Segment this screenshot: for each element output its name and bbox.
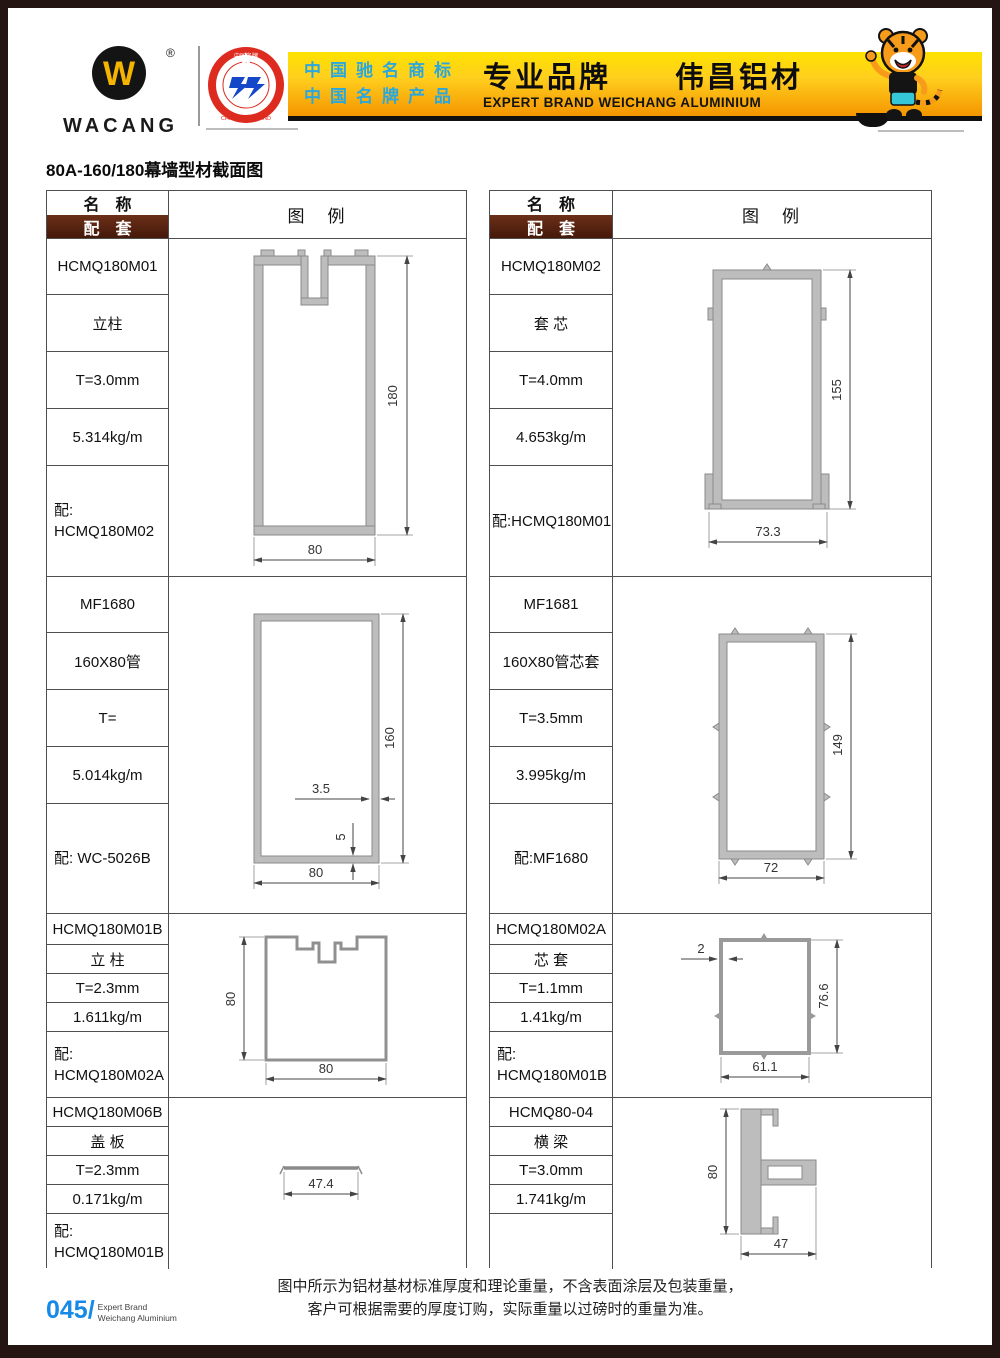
spec-weight: 5.314kg/m [47,409,168,466]
dim-height-label: 155 [829,379,844,401]
match-header: 配 套 [490,215,612,238]
badge-bottom-text: CHINA TOP BRAND [221,116,271,122]
table-header: 名 称 配 套 图 例 [47,191,466,239]
spec-weight: 3.995kg/m [490,747,612,804]
spec-name: 立柱 [47,295,168,352]
profile-shape [713,628,830,865]
legend-cell: 76.6 61.1 2 [613,914,931,1097]
dim-height-label: 149 [830,734,845,756]
spec-thickness: T=3.5mm [490,690,612,747]
spec-weight: 1.611kg/m [47,1003,168,1032]
spec-match [490,1214,612,1269]
spec-name: 160X80管芯套 [490,633,612,690]
profile-shape [254,614,379,863]
spec-name: 套 芯 [490,295,612,352]
spec-match-line2: HCMQ180M02 [54,521,154,542]
banner-credentials: 中国驰名商标 中国名牌产品 [304,58,460,111]
page-footer-brand: Expert Brand Weichang Aluminium [98,1302,177,1323]
name-header: 名 称 [47,191,168,215]
spec-table-left: 名 称 配 套 图 例 HCMQ180M01 立柱 T=3.0mm 5.314k… [46,190,467,1268]
spec-match-line2: HCMQ180M02A [54,1065,164,1086]
spec-thickness: T=3.0mm [490,1156,612,1185]
spec-thickness: T=4.0mm [490,352,612,409]
wacang-logo-icon: W [85,40,157,112]
dim-width-label: 47.4 [308,1176,333,1191]
dim-height-label: 160 [382,727,397,749]
footer-note-line1: 图中所示为铝材基材标准厚度和理论重量，不含表面涂层及包装重量， [150,1276,870,1299]
dim-width-label: 80 [319,1061,333,1076]
spec-match-line1: 配: [497,1044,516,1065]
tiger-mascot-icon [856,22,952,124]
profile-shape [714,933,816,1060]
footer-note-line2: 客户可根据需要的厚度订购，实际重量以过磅时的重量为准。 [150,1299,870,1322]
profile-shape [741,1109,816,1234]
china-top-brand-badge: 中国名牌 CHINA TOP BRAND [206,44,286,126]
spec-match-line1: 配: [54,500,73,521]
banner-credential-line1: 中国驰名商标 [304,58,460,84]
tiger-underline [878,130,964,132]
section-hcmq80-04: HCMQ80-04 横 梁 T=3.0mm 1.741kg/m [490,1098,931,1269]
profile-drawing-hcmq180m02a: 76.6 61.1 2 [613,915,931,1097]
dim-height-label: 76.6 [816,983,831,1008]
spec-match-line1: 配:HCMQ180M01 [492,511,611,532]
banner-brand: 专业品牌 伟昌铝材 EXPERT BRAND WEICHANG ALUMINIU… [483,54,803,110]
legend-cell: 47.4 [169,1098,466,1269]
profile-drawing-hcmq180m02: 155 73.3 [613,240,931,576]
legend-header: 图 例 [169,191,466,238]
spec-weight: 1.741kg/m [490,1185,612,1214]
dim-height-label: 180 [385,385,400,407]
spec-match-line1: 配:MF1680 [514,848,588,869]
dim-height-label: 80 [705,1165,720,1179]
spec-code: HCMQ180M01 [47,239,168,295]
spec-match-line1: 配: [54,1221,73,1242]
profile-drawing-hcmq180m01: 180 80 [169,240,466,576]
dim-bottomwall-label: 5 [333,833,348,840]
spec-name: 立 柱 [47,945,168,974]
profile-drawing-mf1681: 149 72 [613,577,931,913]
svg-text:W: W [102,55,135,93]
spec-weight: 1.41kg/m [490,1003,612,1032]
section-hcmq180m06b: HCMQ180M06B 盖 板 T=2.3mm 0.171kg/m 配: HCM… [47,1098,466,1269]
wacang-logo: W ® WACANG [48,40,193,138]
spec-match: 配: HCMQ180M02 [47,466,168,576]
spec-code: HCMQ180M02A [490,914,612,945]
spec-match: 配: WC-5026B [47,804,168,913]
banner-credential-line2: 中国名牌产品 [304,84,460,110]
badge-underline [206,128,298,130]
spec-code: HCMQ180M06B [47,1098,168,1127]
dim-width-label: 80 [309,865,323,880]
page-footer-brand-line1: Expert Brand [98,1302,148,1312]
profile-drawing-mf1680: 160 80 3.5 5 [169,577,466,913]
spec-thickness: T=3.0mm [47,352,168,409]
page-footer-brand-line2: Weichang Aluminium [98,1313,177,1323]
spec-thickness: T=2.3mm [47,1156,168,1185]
section-hcmq180m02a: HCMQ180M02A 芯 套 T=1.1mm 1.41kg/m 配: HCMQ… [490,914,931,1098]
section-mf1680: MF1680 160X80管 T= 5.014kg/m 配: WC-5026B … [47,577,466,914]
page-title: 80A-160/180幕墙型材截面图 [46,156,263,181]
profile-shape [266,937,386,1060]
footer-note: 图中所示为铝材基材标准厚度和理论重量，不含表面涂层及包装重量， 客户可根据需要的… [150,1276,870,1321]
spec-thickness: T=1.1mm [490,974,612,1003]
wacang-logo-text: WACANG [48,115,193,138]
spec-match: 配: HCMQ180M01B [490,1032,612,1097]
banner-subtitle: EXPERT BRAND WEICHANG ALUMINIUM [483,95,803,110]
spec-code: HCMQ180M02 [490,239,612,295]
dim-width-label: 72 [764,860,778,875]
spec-name: 160X80管 [47,633,168,690]
profile-drawing-hcmq180m06b: 47.4 [169,1099,466,1268]
badge-top-text: 中国名牌 [234,52,258,60]
page-number: 045/ [46,1298,95,1323]
legend-cell: 80 47 [613,1098,931,1269]
profile-shape [254,250,375,535]
spec-name: 横 梁 [490,1127,612,1156]
section-hcmq180m02: HCMQ180M02 套 芯 T=4.0mm 4.653kg/m 配:HCMQ1… [490,239,931,577]
match-header: 配 套 [47,215,168,238]
spec-name: 芯 套 [490,945,612,974]
spec-code: HCMQ180M01B [47,914,168,945]
dim-width-label: 61.1 [752,1059,777,1074]
banner-title: 专业品牌 伟昌铝材 [483,54,803,96]
spec-name: 盖 板 [47,1127,168,1156]
legend-cell: 149 72 [613,577,931,913]
legend-cell: 80 80 [169,914,466,1097]
registered-mark: ® [166,46,175,60]
catalog-page: W ® WACANG 中国名牌 CHINA TOP BRAND 中国驰名商标 中… [0,0,1000,1358]
dim-wall-label: 3.5 [312,781,330,796]
profile-drawing-hcmq180m01b: 80 80 [169,915,466,1097]
spec-thickness: T=2.3mm [47,974,168,1003]
dim-width-label: 73.3 [755,524,780,539]
legend-cell: 160 80 3.5 5 [169,577,466,913]
spec-weight: 0.171kg/m [47,1185,168,1214]
spec-thickness: T= [47,690,168,747]
spec-weight: 4.653kg/m [490,409,612,466]
page-footer: 045/ Expert Brand Weichang Aluminium [46,1298,177,1323]
spec-code: MF1680 [47,577,168,633]
spec-match-line2: HCMQ180M01B [497,1065,607,1086]
dim-width-label: 80 [308,542,322,557]
spec-match: 配: HCMQ180M02A [47,1032,168,1097]
name-header: 名 称 [490,191,612,215]
spec-match-line1: 配: WC-5026B [54,848,151,869]
spec-match: 配:HCMQ180M01 [490,466,612,576]
dim-height-label: 80 [223,991,238,1005]
section-hcmq180m01: HCMQ180M01 立柱 T=3.0mm 5.314kg/m 配: HCMQ1… [47,239,466,577]
legend-cell: 180 80 [169,239,466,576]
section-hcmq180m01b: HCMQ180M01B 立 柱 T=2.3mm 1.611kg/m 配: HCM… [47,914,466,1098]
dim-wall-label: 2 [697,941,704,956]
legend-cell: 155 73.3 [613,239,931,576]
table-header: 名 称 配 套 图 例 [490,191,931,239]
spec-match-line1: 配: [54,1044,73,1065]
spec-code: MF1681 [490,577,612,633]
spec-match-line2: HCMQ180M01B [54,1242,164,1263]
spec-weight: 5.014kg/m [47,747,168,804]
profile-drawing-hcmq80-04: 80 47 [613,1099,931,1268]
spec-table-right: 名 称 配 套 图 例 HCMQ180M02 套 芯 T=4.0mm 4.653… [489,190,932,1268]
spec-match: 配:MF1680 [490,804,612,913]
profile-shape [705,264,829,509]
profile-shape [280,1166,362,1174]
section-mf1681: MF1681 160X80管芯套 T=3.5mm 3.995kg/m 配:MF1… [490,577,931,914]
legend-header: 图 例 [613,191,931,238]
spec-code: HCMQ80-04 [490,1098,612,1127]
spec-match: 配: HCMQ180M01B [47,1214,168,1269]
header-divider [198,46,200,126]
dim-width-label: 47 [774,1236,788,1251]
